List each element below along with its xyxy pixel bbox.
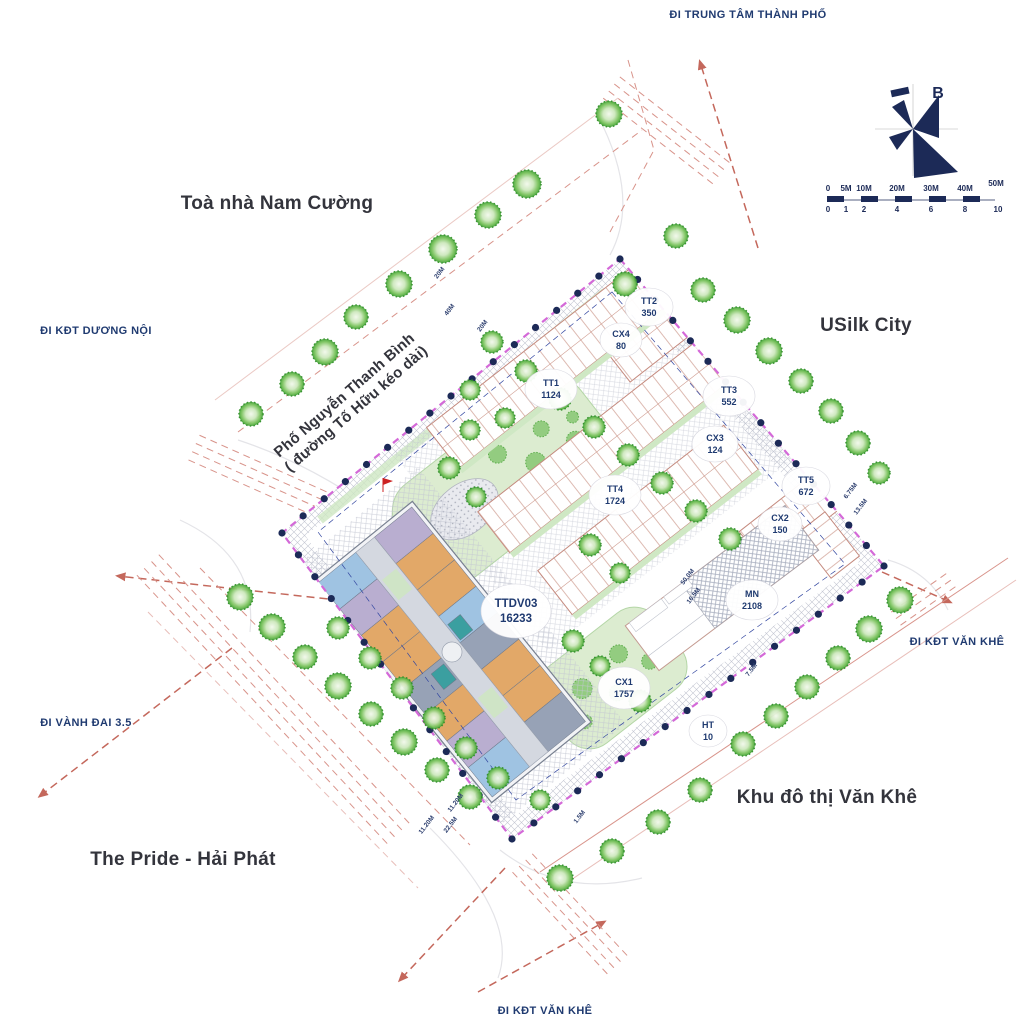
- zone-bubble-tt1: TT1 1124: [525, 369, 577, 409]
- boundary-marker-dot: [300, 512, 307, 519]
- svg-text:40M: 40M: [957, 184, 973, 193]
- tree-icon: [789, 369, 813, 393]
- boundary-marker-dot: [490, 358, 497, 365]
- boundary-marker-dot: [508, 835, 515, 842]
- tree-icon: [795, 675, 819, 699]
- svg-text:552: 552: [721, 397, 736, 407]
- boundary-marker-dot: [311, 573, 318, 580]
- svg-text:1: 1: [844, 205, 849, 214]
- svg-text:2108: 2108: [742, 601, 762, 611]
- boundary-marker-dot: [363, 461, 370, 468]
- tree-icon: [438, 457, 460, 479]
- boundary-marker-dot: [532, 324, 539, 331]
- scale-bar: 0 5M 10M 20M 30M 40M 50M 0 1 2 4 6 8 10: [826, 179, 1004, 214]
- label-road-van-khe-east: ĐI KĐT VĂN KHÊ: [910, 635, 1005, 648]
- boundary-marker-dot: [792, 460, 799, 467]
- tree-icon: [495, 408, 515, 428]
- tree-icon: [460, 420, 480, 440]
- svg-text:20M: 20M: [889, 184, 905, 193]
- boundary-marker-dot: [640, 739, 647, 746]
- boundary-marker-dot: [618, 755, 625, 762]
- svg-text:16233: 16233: [500, 613, 532, 625]
- svg-text:0: 0: [826, 184, 831, 193]
- label-usilk-city: USilk City: [820, 315, 912, 336]
- site-plan-page: TT2 350 CX4 80 TT1 1124 TT3 552 CX3 124 …: [0, 0, 1024, 1024]
- boundary-marker-dot: [704, 358, 711, 365]
- svg-text:CX4: CX4: [612, 329, 630, 339]
- zone-bubble-mn: MN 2108: [726, 580, 778, 620]
- tree-icon: [391, 677, 413, 699]
- tree-icon: [646, 810, 670, 834]
- zone-value: 350: [641, 308, 656, 318]
- boundary-marker-dot: [687, 337, 694, 344]
- boundary-marker-dot: [727, 675, 734, 682]
- svg-text:CX2: CX2: [771, 513, 789, 523]
- boundary-marker-dot: [771, 643, 778, 650]
- tree-icon: [359, 647, 381, 669]
- tree-icon: [688, 778, 712, 802]
- tree-icon: [487, 767, 509, 789]
- boundary-marker-dot: [669, 317, 676, 324]
- tree-icon: [460, 380, 480, 400]
- boundary-marker-dot: [863, 542, 870, 549]
- boundary-marker-dot: [426, 410, 433, 417]
- tree-icon: [466, 487, 486, 507]
- boundary-marker-dot: [880, 562, 887, 569]
- tree-icon: [391, 729, 417, 755]
- tree-icon: [868, 462, 890, 484]
- tree-icon: [423, 707, 445, 729]
- boundary-marker-dot: [447, 392, 454, 399]
- boundary-marker-dot: [459, 770, 466, 777]
- boundary-marker-dot: [384, 444, 391, 451]
- crosswalk-top: [603, 77, 730, 184]
- boundary-marker-dot: [552, 803, 559, 810]
- boundary-marker-dot: [405, 427, 412, 434]
- svg-text:0: 0: [826, 205, 831, 214]
- tree-icon: [227, 584, 253, 610]
- arrow-to-city-center: [700, 62, 758, 248]
- tree-icon: [764, 704, 788, 728]
- svg-text:1124: 1124: [541, 390, 561, 400]
- label-nam-cuong: Toà nhà Nam Cường: [181, 193, 373, 214]
- svg-text:TT1: TT1: [543, 378, 559, 388]
- label-the-pride: The Pride - Hải Phát: [90, 849, 276, 870]
- tree-icon: [719, 528, 741, 550]
- tree-icon: [455, 737, 477, 759]
- svg-text:6: 6: [929, 205, 934, 214]
- zone-bubble-ttdv03: TTDV03 16233: [481, 584, 551, 638]
- site-plan-map: TT2 350 CX4 80 TT1 1124 TT3 552 CX3 124 …: [0, 0, 1024, 1024]
- zone-bubble-tt3: TT3 552: [703, 376, 755, 416]
- tree-icon: [239, 402, 263, 426]
- boundary-marker-dot: [361, 639, 368, 646]
- boundary-marker-dot: [553, 307, 560, 314]
- zone-bubble-cx3: CX3 124: [692, 426, 738, 462]
- tree-icon: [826, 646, 850, 670]
- boundary-marker-dot: [574, 290, 581, 297]
- tree-icon: [731, 732, 755, 756]
- svg-text:MN: MN: [745, 589, 759, 599]
- arrow-to-van-khe-ne: [478, 922, 604, 992]
- zone-bubble-tt2: TT2 350: [625, 288, 673, 326]
- tree-icon: [513, 170, 541, 198]
- tree-icon: [325, 673, 351, 699]
- svg-text:5M: 5M: [840, 184, 851, 193]
- label-van-khe-area: Khu đô thị Văn Khê: [737, 787, 918, 808]
- label-road-vanh-dai: ĐI VÀNH ĐAI 3.5: [40, 716, 132, 729]
- svg-text:HT: HT: [702, 720, 714, 730]
- compass-rose: B: [875, 84, 958, 178]
- boundary-marker-dot: [683, 707, 690, 714]
- tree-icon: [530, 790, 550, 810]
- tree-icon: [429, 235, 457, 263]
- arrow-to-van-khe-sw: [400, 868, 505, 980]
- boundary-marker-dot: [837, 595, 844, 602]
- boundary-marker-dot: [278, 529, 285, 536]
- zone-bubble-ht: HT 10: [689, 715, 727, 747]
- zone-bubble-tt4: TT4 1724: [589, 475, 641, 515]
- compass-north-label: B: [932, 85, 944, 102]
- zone-bubble-cx2: CX2 150: [758, 507, 802, 541]
- boundary-marker-dot: [859, 578, 866, 585]
- tree-icon: [425, 758, 449, 782]
- svg-text:1724: 1724: [605, 496, 625, 506]
- svg-text:6.75M: 6.75M: [842, 482, 859, 501]
- tree-icon: [846, 431, 870, 455]
- tree-icon: [724, 307, 750, 333]
- boundary-marker-dot: [662, 723, 669, 730]
- tree-icon: [756, 338, 782, 364]
- svg-text:1757: 1757: [614, 689, 634, 699]
- svg-text:CX3: CX3: [706, 433, 724, 443]
- tree-icon: [819, 399, 843, 423]
- svg-text:10: 10: [703, 732, 713, 742]
- svg-text:40M: 40M: [443, 303, 456, 317]
- svg-text:CX1: CX1: [615, 677, 633, 687]
- svg-text:TT4: TT4: [607, 484, 623, 494]
- boundary-marker-dot: [757, 419, 764, 426]
- tree-icon: [562, 630, 584, 652]
- boundary-marker-dot: [595, 273, 602, 280]
- svg-text:TT5: TT5: [798, 475, 814, 485]
- tree-icon: [664, 224, 688, 248]
- svg-text:50M: 50M: [988, 179, 1004, 188]
- tree-icon: [481, 331, 503, 353]
- tree-icon: [293, 645, 317, 669]
- tree-icon: [327, 617, 349, 639]
- boundary-marker-dot: [492, 814, 499, 821]
- tree-icon: [386, 271, 412, 297]
- svg-text:2: 2: [862, 205, 867, 214]
- tree-icon: [583, 416, 605, 438]
- boundary-marker-dot: [815, 611, 822, 618]
- svg-text:8: 8: [963, 205, 968, 214]
- svg-text:TT3: TT3: [721, 385, 737, 395]
- svg-text:1.5M: 1.5M: [573, 809, 587, 825]
- tree-icon: [691, 278, 715, 302]
- boundary-marker-dot: [328, 595, 335, 602]
- zone-bubble-tt5: TT5 672: [782, 467, 830, 505]
- svg-text:22.5M: 22.5M: [442, 816, 459, 835]
- boundary-marker-dot: [410, 704, 417, 711]
- tree-icon: [610, 563, 630, 583]
- boundary-marker-dot: [443, 748, 450, 755]
- compass-bar: [890, 87, 909, 98]
- tree-icon: [359, 702, 383, 726]
- tree-icon: [651, 472, 673, 494]
- compass-blade-nw: [892, 100, 913, 129]
- svg-text:4: 4: [895, 205, 900, 214]
- svg-text:124: 124: [707, 445, 722, 455]
- boundary-marker-dot: [295, 551, 302, 558]
- svg-text:150: 150: [772, 525, 787, 535]
- tree-icon: [685, 500, 707, 522]
- tree-icon: [579, 534, 601, 556]
- tree-icon: [259, 614, 285, 640]
- tree-icon: [596, 101, 622, 127]
- svg-text:20M: 20M: [476, 319, 489, 333]
- svg-text:672: 672: [798, 487, 813, 497]
- tree-icon: [887, 587, 913, 613]
- boundary-marker-dot: [596, 771, 603, 778]
- tree-icon: [475, 202, 501, 228]
- tree-icon: [312, 339, 338, 365]
- zone-bubble-cx1: CX1 1757: [598, 667, 650, 709]
- boundary-marker-dot: [511, 341, 518, 348]
- svg-text:30M: 30M: [923, 184, 939, 193]
- tree-icon: [856, 616, 882, 642]
- zone-code: TT2: [641, 296, 657, 306]
- label-road-city-center: ĐI TRUNG TÂM THÀNH PHỐ: [669, 7, 826, 21]
- svg-text:11.20M: 11.20M: [417, 815, 436, 836]
- compass-blade-sw: [889, 129, 913, 150]
- boundary-marker-dot: [845, 521, 852, 528]
- boundary-marker-dot: [321, 495, 328, 502]
- tree-icon: [280, 372, 304, 396]
- boundary-marker-dot: [574, 787, 581, 794]
- tree-icon: [547, 865, 573, 891]
- boundary-marker-dot: [793, 627, 800, 634]
- label-road-duong-noi: ĐI KĐT DƯƠNG NỘI: [40, 324, 152, 337]
- svg-text:10M: 10M: [856, 184, 872, 193]
- boundary-marker-dot: [775, 440, 782, 447]
- boundary-marker-dot: [342, 478, 349, 485]
- tree-icon: [344, 305, 368, 329]
- svg-text:80: 80: [616, 341, 626, 351]
- svg-text:10: 10: [994, 205, 1003, 214]
- svg-text:TTDV03: TTDV03: [495, 598, 538, 610]
- boundary-marker-dot: [828, 501, 835, 508]
- zone-bubble-cx4: CX4 80: [600, 323, 642, 357]
- boundary-marker-dot: [705, 691, 712, 698]
- boundary-marker-dot: [616, 255, 623, 262]
- tree-icon: [617, 444, 639, 466]
- boundary-marker-dot: [530, 819, 537, 826]
- label-road-van-khe-south: ĐI KĐT VĂN KHÊ: [498, 1004, 593, 1017]
- svg-text:13.5M: 13.5M: [852, 498, 869, 517]
- tree-icon: [600, 839, 624, 863]
